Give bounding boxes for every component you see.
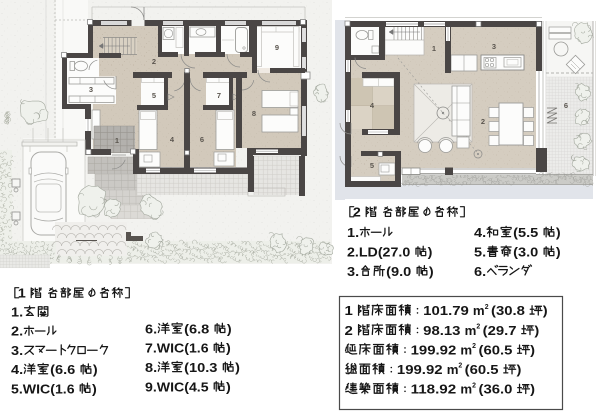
svg-text:): ) [235,360,240,375]
svg-text:(6.8: (6.8 [184,321,213,336]
svg-text:2: 2 [472,382,476,389]
svg-text:6.: 6. [145,321,157,336]
svg-text:6: 6 [200,135,204,144]
svg-text:): ) [226,379,231,394]
svg-text:): ) [226,341,231,356]
svg-text:(6.6: (6.6 [50,362,79,377]
svg-text:): ) [543,303,548,318]
svg-text:): ) [92,381,97,396]
svg-text:1: 1 [345,303,358,318]
svg-text:4.: 4. [474,225,486,240]
svg-text:m: m [447,362,459,377]
svg-text:(10.3: (10.3 [184,360,221,375]
svg-text:): ) [428,245,433,260]
svg-text:7: 7 [217,91,221,100]
svg-text:): ) [530,342,535,357]
svg-text:7.WIC(1.6: 7.WIC(1.6 [145,341,213,356]
svg-text:1: 1 [115,136,119,145]
svg-text:8.: 8. [145,360,157,375]
svg-text:): ) [93,362,98,377]
svg-text:5: 5 [370,161,374,170]
svg-text:5.: 5. [474,245,486,260]
svg-text:m: m [473,303,485,318]
svg-text:m: m [460,382,472,397]
svg-text:1.: 1. [347,225,359,240]
svg-text:3.: 3. [347,264,359,279]
svg-text:9.WIC(4.5: 9.WIC(4.5 [145,379,213,394]
svg-text:5.WIC(1.6: 5.WIC(1.6 [11,381,79,396]
svg-text:5: 5 [152,91,156,100]
svg-text:118.92: 118.92 [411,382,461,397]
svg-text:(29.7: (29.7 [483,323,521,338]
svg-text:2.LD(27.0: 2.LD(27.0 [347,245,414,260]
svg-text:8: 8 [252,109,256,118]
svg-text:2: 2 [353,206,365,220]
svg-text:1: 1 [432,44,436,53]
svg-text:3: 3 [492,42,496,51]
svg-text:2: 2 [345,323,358,338]
svg-text:2.: 2. [11,324,23,339]
svg-text:(9.0: (9.0 [386,264,415,279]
svg-text:2: 2 [458,363,462,370]
svg-text:): ) [429,264,434,279]
svg-text:): ) [227,321,232,336]
svg-text:): ) [556,225,561,240]
svg-text:98.13: 98.13 [423,323,464,338]
svg-text:): ) [517,362,522,377]
svg-text:(30.8: (30.8 [491,303,529,318]
svg-text:1.: 1. [11,305,23,320]
svg-text:101.79: 101.79 [423,303,473,318]
svg-text:1: 1 [18,287,30,301]
svg-text:(60.5: (60.5 [479,342,517,357]
svg-text:3: 3 [89,85,93,94]
svg-text:2: 2 [476,324,480,331]
svg-text:): ) [530,382,535,397]
svg-text:2: 2 [485,304,489,311]
svg-text:m: m [465,323,477,338]
svg-text:3.: 3. [11,343,23,358]
svg-text:4.: 4. [11,362,23,377]
svg-text:): ) [534,323,539,338]
svg-text:m: m [460,342,472,357]
svg-text:2: 2 [152,57,156,66]
svg-text:6: 6 [564,101,568,110]
svg-text:): ) [556,245,561,260]
svg-text:(36.0: (36.0 [479,382,517,397]
svg-text:(3.0: (3.0 [513,245,542,260]
svg-text:199.92: 199.92 [397,362,447,377]
svg-text:9: 9 [275,43,279,52]
svg-text:(5.5: (5.5 [513,225,542,240]
svg-text:6.: 6. [474,264,486,279]
svg-text:2: 2 [472,343,476,350]
svg-text:(60.5: (60.5 [465,362,503,377]
svg-text:199.92: 199.92 [411,342,461,357]
svg-text:2: 2 [481,117,485,126]
